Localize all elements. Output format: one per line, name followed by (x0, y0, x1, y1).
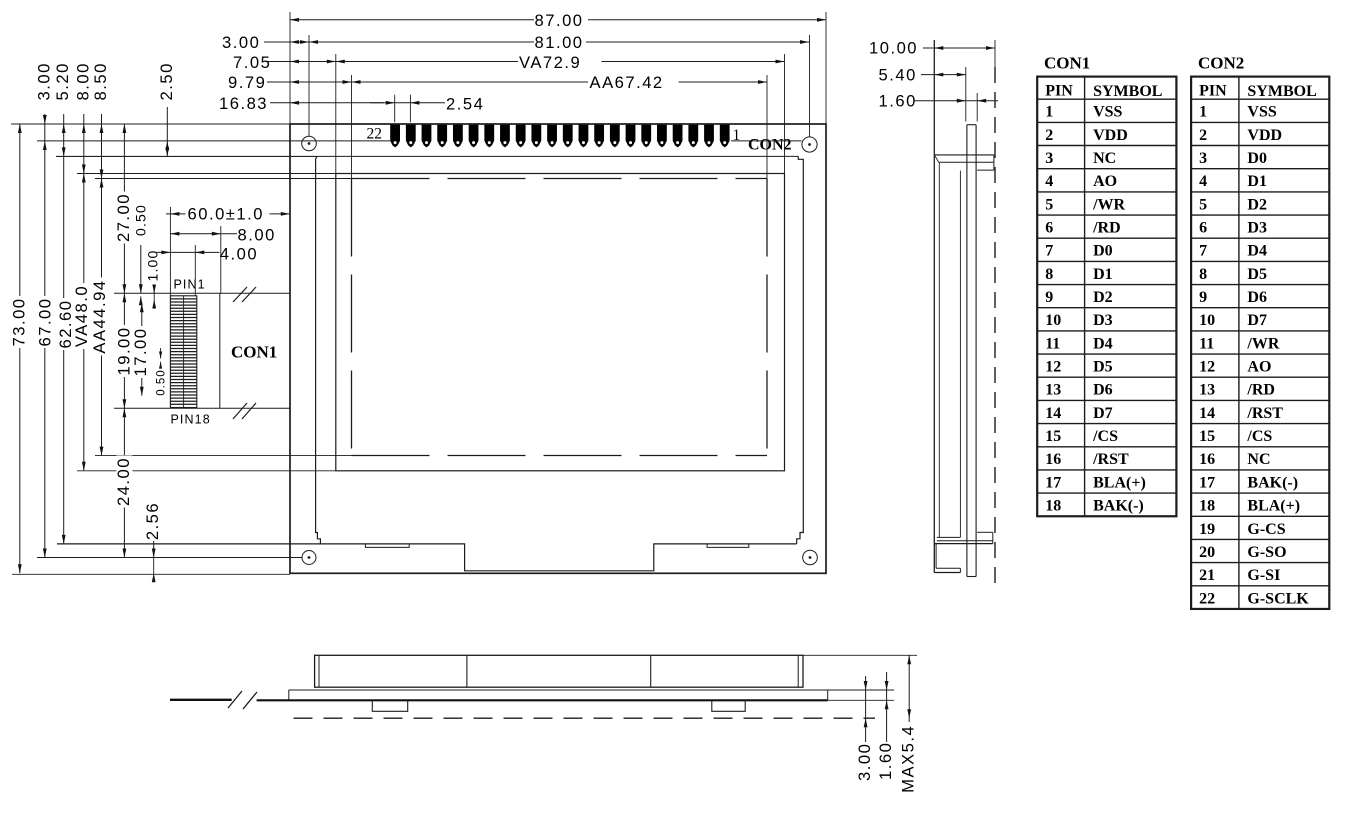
svg-text:4.00: 4.00 (220, 244, 258, 263)
svg-text:16: 16 (1199, 451, 1215, 468)
svg-text:BAK(-): BAK(-) (1093, 498, 1144, 515)
svg-text:16: 16 (1045, 451, 1061, 468)
svg-text:PIN: PIN (1045, 82, 1073, 99)
svg-text:7: 7 (1045, 243, 1053, 260)
svg-text:/RD: /RD (1246, 382, 1275, 399)
svg-text:1: 1 (1045, 104, 1053, 121)
svg-text:AO: AO (1093, 173, 1117, 190)
svg-text:9: 9 (1045, 289, 1053, 306)
svg-text:4: 4 (1045, 173, 1053, 190)
svg-text:17: 17 (1045, 474, 1061, 491)
svg-text:7: 7 (1199, 243, 1207, 260)
svg-text:CON2: CON2 (748, 137, 792, 154)
svg-text:/WR: /WR (1092, 196, 1125, 213)
svg-text:13: 13 (1045, 382, 1061, 399)
svg-text:6: 6 (1045, 220, 1053, 237)
svg-text:2: 2 (1199, 127, 1207, 144)
svg-text:BLA(+): BLA(+) (1093, 474, 1146, 491)
svg-text:13: 13 (1199, 382, 1215, 399)
svg-text:4: 4 (1199, 173, 1207, 190)
svg-text:20: 20 (1199, 544, 1215, 561)
svg-text:18: 18 (1045, 498, 1061, 515)
svg-text:15: 15 (1045, 428, 1061, 445)
svg-text:2: 2 (1045, 127, 1053, 144)
svg-text:9.79: 9.79 (228, 73, 266, 92)
svg-text:VSS: VSS (1093, 104, 1122, 121)
svg-text:16.83: 16.83 (219, 94, 268, 113)
svg-text:22: 22 (367, 126, 383, 143)
svg-text:2.54: 2.54 (446, 95, 484, 114)
svg-text:3: 3 (1045, 150, 1053, 167)
svg-text:PIN1: PIN1 (174, 278, 206, 292)
svg-text:MAX5.4: MAX5.4 (899, 725, 918, 793)
svg-text:/WR: /WR (1246, 335, 1279, 352)
svg-text:D6: D6 (1247, 289, 1267, 306)
svg-text:D2: D2 (1247, 196, 1267, 213)
svg-text:3.00: 3.00 (855, 743, 874, 781)
svg-text:1: 1 (1199, 104, 1207, 121)
svg-text:5: 5 (1199, 196, 1207, 213)
svg-text:0.50: 0.50 (156, 369, 168, 395)
svg-text:CON1: CON1 (231, 343, 277, 362)
svg-text:7.05: 7.05 (233, 53, 271, 72)
svg-text:G-SO: G-SO (1247, 544, 1286, 561)
svg-text:D6: D6 (1093, 382, 1113, 399)
svg-text:D7: D7 (1247, 312, 1267, 329)
svg-text:/RST: /RST (1246, 405, 1283, 422)
svg-text:D0: D0 (1093, 243, 1113, 260)
svg-text:15: 15 (1199, 428, 1215, 445)
svg-text:14: 14 (1199, 405, 1215, 422)
svg-text:D7: D7 (1093, 405, 1113, 422)
svg-text:NC: NC (1093, 150, 1116, 167)
svg-text:12: 12 (1045, 359, 1061, 376)
svg-text:AO: AO (1247, 359, 1271, 376)
svg-text:8.00: 8.00 (73, 62, 92, 100)
svg-text:PIN: PIN (1199, 82, 1227, 99)
svg-text:/RST: /RST (1092, 451, 1129, 468)
svg-text:BAK(-): BAK(-) (1247, 474, 1298, 491)
svg-text:D4: D4 (1093, 335, 1113, 352)
svg-text:17: 17 (1199, 474, 1215, 491)
svg-text:D0: D0 (1247, 150, 1267, 167)
svg-text:18: 18 (1199, 498, 1215, 515)
svg-text:8: 8 (1199, 266, 1207, 283)
svg-text:2.56: 2.56 (143, 502, 162, 540)
svg-text:19: 19 (1199, 521, 1215, 538)
svg-text:12: 12 (1199, 359, 1215, 376)
svg-text:11: 11 (1199, 335, 1214, 352)
svg-text:8: 8 (1045, 266, 1053, 283)
svg-text:D4: D4 (1247, 243, 1267, 260)
svg-text:11: 11 (1045, 335, 1060, 352)
svg-text:/CS: /CS (1092, 428, 1118, 445)
svg-text:8.50: 8.50 (91, 62, 110, 100)
svg-text:G-SCLK: G-SCLK (1247, 590, 1309, 607)
svg-text:D1: D1 (1093, 266, 1113, 283)
svg-text:0.50: 0.50 (132, 204, 148, 236)
svg-text:G-SI: G-SI (1247, 567, 1280, 584)
svg-text:81.00: 81.00 (535, 33, 584, 52)
svg-text:VSS: VSS (1247, 104, 1276, 121)
svg-text:10: 10 (1199, 312, 1215, 329)
svg-text:D2: D2 (1093, 289, 1113, 306)
svg-text:1: 1 (733, 127, 741, 144)
svg-text:/RD: /RD (1092, 220, 1121, 237)
svg-text:73.00: 73.00 (9, 297, 28, 346)
svg-text:6: 6 (1199, 220, 1207, 237)
svg-text:VA72.9: VA72.9 (519, 53, 581, 72)
svg-text:1.60: 1.60 (879, 92, 917, 111)
svg-text:22: 22 (1199, 590, 1215, 607)
svg-text:3: 3 (1199, 150, 1207, 167)
svg-text:10.00: 10.00 (869, 39, 918, 58)
svg-text:G-CS: G-CS (1247, 521, 1285, 538)
svg-text:10: 10 (1045, 312, 1061, 329)
svg-text:D1: D1 (1247, 173, 1267, 190)
svg-text:VA48.0: VA48.0 (72, 285, 91, 347)
svg-text:PIN18: PIN18 (171, 413, 211, 427)
svg-text:24.00: 24.00 (114, 457, 133, 506)
svg-text:AA44.94: AA44.94 (90, 279, 109, 353)
svg-text:2.50: 2.50 (157, 62, 176, 100)
svg-text:SYMBOL: SYMBOL (1247, 83, 1316, 100)
svg-text:27.00: 27.00 (114, 193, 133, 242)
svg-text:D5: D5 (1247, 266, 1267, 283)
svg-text:1.00: 1.00 (145, 249, 161, 281)
svg-text:/CS: /CS (1246, 428, 1272, 445)
svg-text:17.00: 17.00 (131, 327, 150, 376)
svg-text:5: 5 (1045, 196, 1053, 213)
svg-text:VDD: VDD (1093, 127, 1128, 144)
svg-text:67.00: 67.00 (35, 297, 54, 346)
svg-text:21: 21 (1199, 567, 1215, 584)
svg-text:5.40: 5.40 (879, 65, 917, 84)
svg-text:CON2: CON2 (1198, 54, 1244, 73)
svg-text:NC: NC (1247, 451, 1270, 468)
svg-text:60.0±1.0: 60.0±1.0 (188, 205, 264, 224)
svg-text:AA67.42: AA67.42 (590, 73, 664, 92)
svg-text:SYMBOL: SYMBOL (1093, 83, 1162, 100)
svg-text:3.00: 3.00 (34, 62, 53, 100)
svg-text:5.20: 5.20 (53, 62, 72, 100)
svg-text:BLA(+): BLA(+) (1247, 498, 1300, 515)
svg-text:14: 14 (1045, 405, 1061, 422)
svg-text:VDD: VDD (1247, 127, 1282, 144)
svg-text:1.60: 1.60 (876, 742, 895, 780)
svg-text:D5: D5 (1093, 359, 1113, 376)
svg-text:87.00: 87.00 (535, 11, 584, 30)
svg-text:8.00: 8.00 (238, 226, 276, 245)
svg-text:3.00: 3.00 (222, 33, 260, 52)
svg-text:9: 9 (1199, 289, 1207, 306)
svg-text:D3: D3 (1247, 220, 1267, 237)
svg-text:CON1: CON1 (1044, 54, 1090, 73)
svg-text:D3: D3 (1093, 312, 1113, 329)
